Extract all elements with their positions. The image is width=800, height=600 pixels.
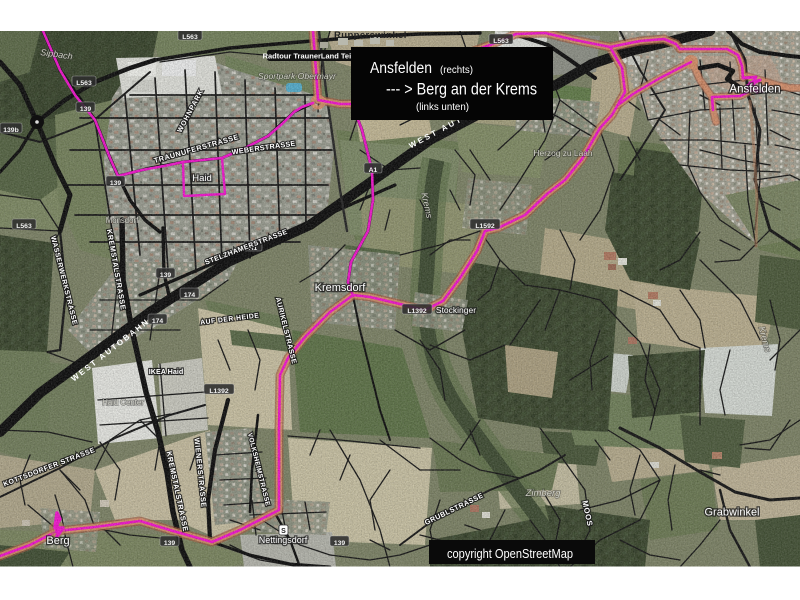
svg-text:Rupperswinkel: Rupperswinkel — [334, 30, 407, 41]
svg-text:Sportpark Obermayr: Sportpark Obermayr — [258, 71, 337, 81]
svg-text:L563: L563 — [76, 80, 92, 87]
svg-text:(rechts): (rechts) — [440, 64, 473, 76]
svg-text:Zimberg: Zimberg — [525, 488, 562, 499]
svg-text:Nettingsdorf: Nettingsdorf — [259, 535, 308, 545]
svg-text:Stockinger: Stockinger — [436, 305, 476, 315]
svg-text:S: S — [281, 528, 286, 535]
svg-text:Ansfelden: Ansfelden — [729, 84, 780, 96]
svg-text:L1392: L1392 — [407, 308, 426, 315]
svg-text:A1: A1 — [369, 167, 378, 174]
svg-text:L563: L563 — [182, 34, 198, 41]
svg-text:Kremsdorf: Kremsdorf — [315, 282, 367, 294]
svg-text:Herzog zu Laah: Herzog zu Laah — [533, 148, 592, 158]
svg-text:Berg: Berg — [46, 535, 69, 547]
svg-text:(links unten): (links unten) — [416, 101, 469, 113]
svg-text:139: 139 — [164, 540, 176, 547]
svg-text:L563: L563 — [493, 38, 509, 45]
svg-text:139: 139 — [160, 272, 172, 279]
svg-text:174: 174 — [184, 292, 196, 299]
svg-text:139: 139 — [110, 180, 122, 187]
svg-text:L1392: L1392 — [209, 388, 228, 395]
svg-text:L563: L563 — [16, 223, 32, 230]
svg-text:L1592: L1592 — [475, 223, 494, 230]
svg-text:174: 174 — [152, 318, 164, 325]
svg-text:--- > Berg an der Krems: --- > Berg an der Krems — [386, 80, 537, 99]
svg-text:139b: 139b — [3, 127, 19, 134]
svg-text:copyright OpenStreetMap: copyright OpenStreetMap — [447, 547, 573, 561]
svg-text:139: 139 — [334, 540, 346, 547]
svg-text:IKEA Haid: IKEA Haid — [149, 367, 183, 376]
svg-text:Haid Center: Haid Center — [102, 398, 144, 407]
svg-text:Ansfelden: Ansfelden — [370, 60, 432, 77]
svg-text:Monsdorf: Monsdorf — [106, 216, 139, 225]
svg-text:139: 139 — [80, 106, 92, 113]
svg-text:Radtour TraunerLand Teil2: Radtour TraunerLand Teil2 — [263, 52, 358, 61]
svg-text:Haid: Haid — [192, 173, 212, 184]
svg-text:Grabwinkel: Grabwinkel — [704, 507, 759, 519]
